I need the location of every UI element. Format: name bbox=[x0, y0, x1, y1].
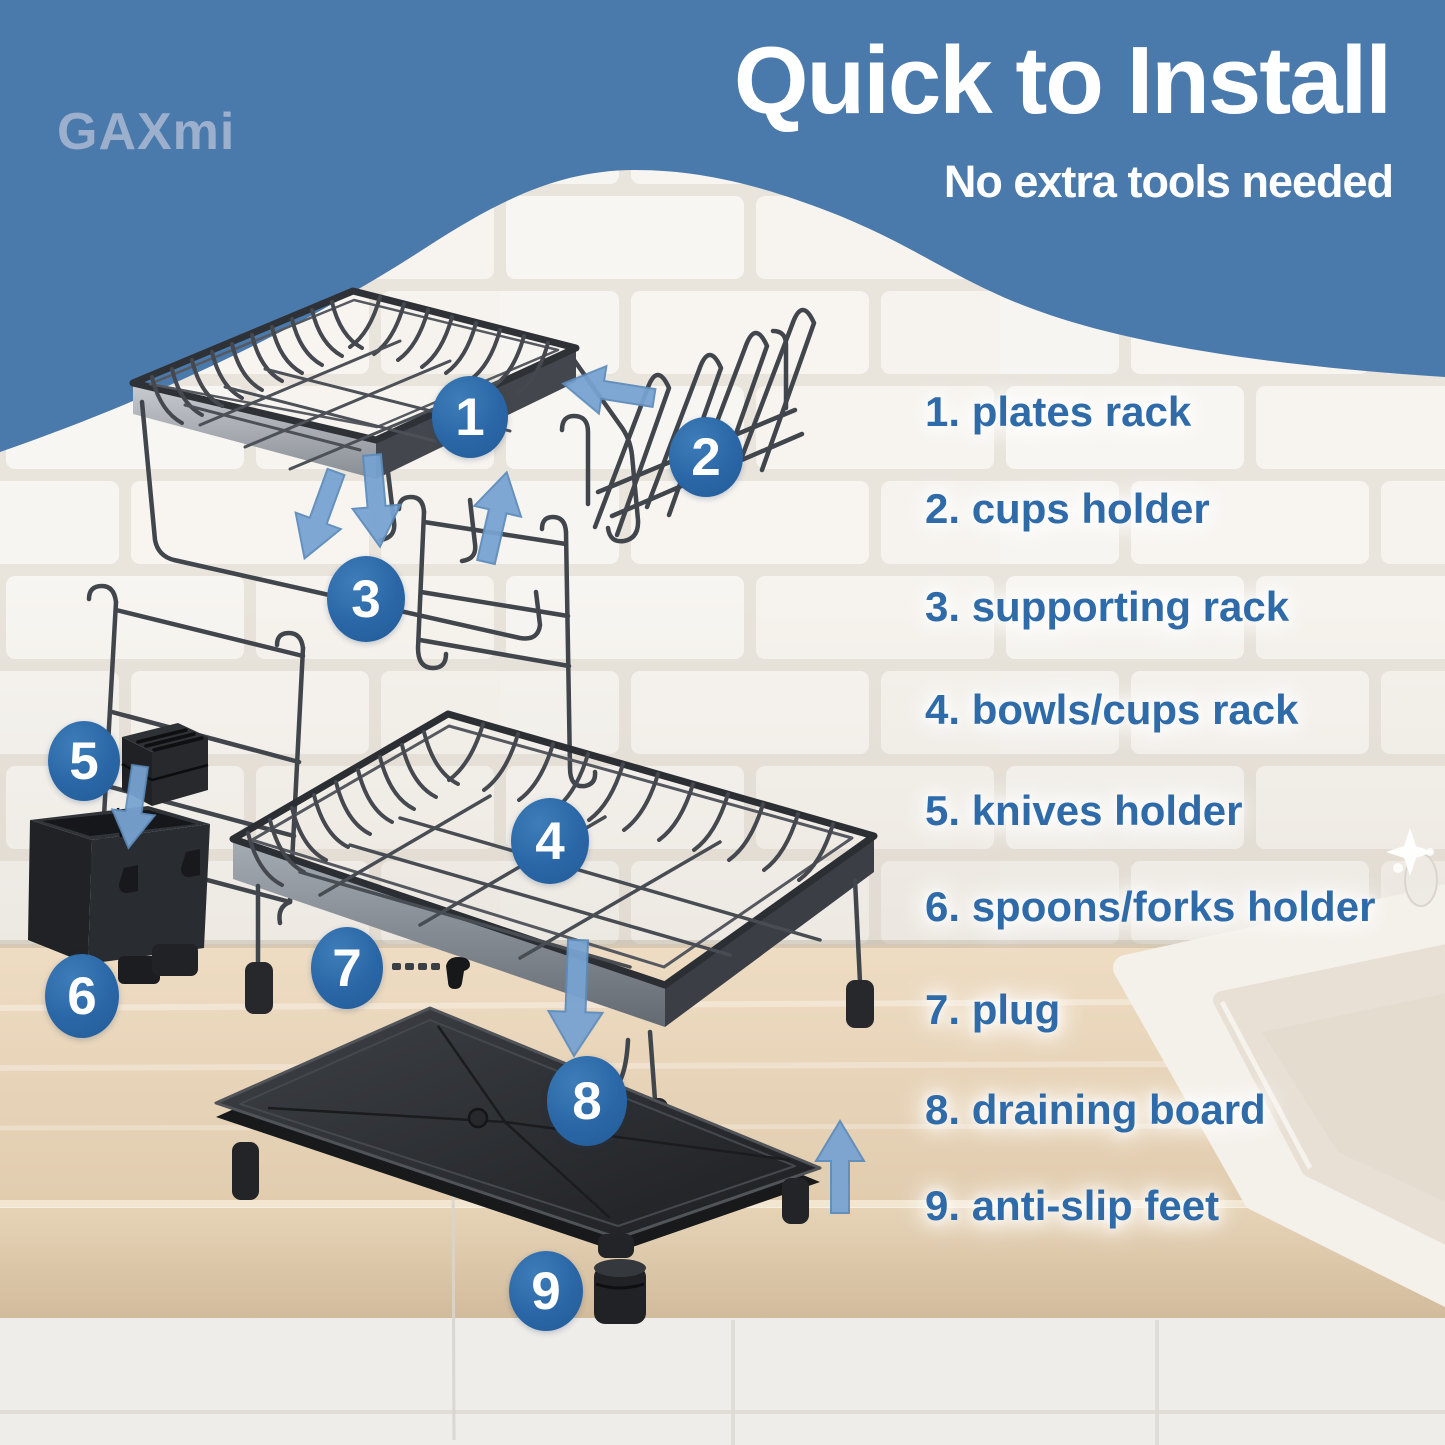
part-label-3: 3. supporting rack bbox=[925, 583, 1289, 631]
part-label-4: 4. bowls/cups rack bbox=[925, 686, 1299, 734]
anti-slip-foot-illustration bbox=[594, 1259, 646, 1324]
part-badge-9: 9 bbox=[509, 1251, 583, 1331]
page-subtitle: No extra tools needed bbox=[944, 156, 1393, 208]
cable-line bbox=[453, 1165, 454, 1440]
part-badge-7: 7 bbox=[311, 927, 383, 1009]
part-label-7: 7. plug bbox=[925, 986, 1060, 1034]
part-badge-5: 5 bbox=[48, 721, 120, 801]
part-label-8: 8. draining board bbox=[925, 1086, 1266, 1134]
cabinets bbox=[0, 1318, 1445, 1445]
part-badge-8: 8 bbox=[547, 1056, 627, 1146]
part-badge-2: 2 bbox=[669, 417, 743, 497]
part-label-1: 1. plates rack bbox=[925, 388, 1191, 436]
page-title: Quick to Install bbox=[734, 26, 1390, 136]
part-label-2: 2. cups holder bbox=[925, 485, 1210, 533]
part-badge-1: 1 bbox=[432, 376, 508, 458]
part-label-6: 6. spoons/forks holder bbox=[925, 883, 1375, 931]
part-label-9: 9. anti-slip feet bbox=[925, 1182, 1219, 1230]
part-badge-3: 3 bbox=[327, 556, 405, 642]
product-infographic: GAXmi Quick to Install No extra tools ne… bbox=[0, 0, 1445, 1445]
part-badge-4: 4 bbox=[511, 798, 589, 884]
part-label-5: 5. knives holder bbox=[925, 787, 1242, 835]
brand-logo: GAXmi bbox=[57, 102, 235, 162]
part-badge-6: 6 bbox=[45, 954, 119, 1038]
